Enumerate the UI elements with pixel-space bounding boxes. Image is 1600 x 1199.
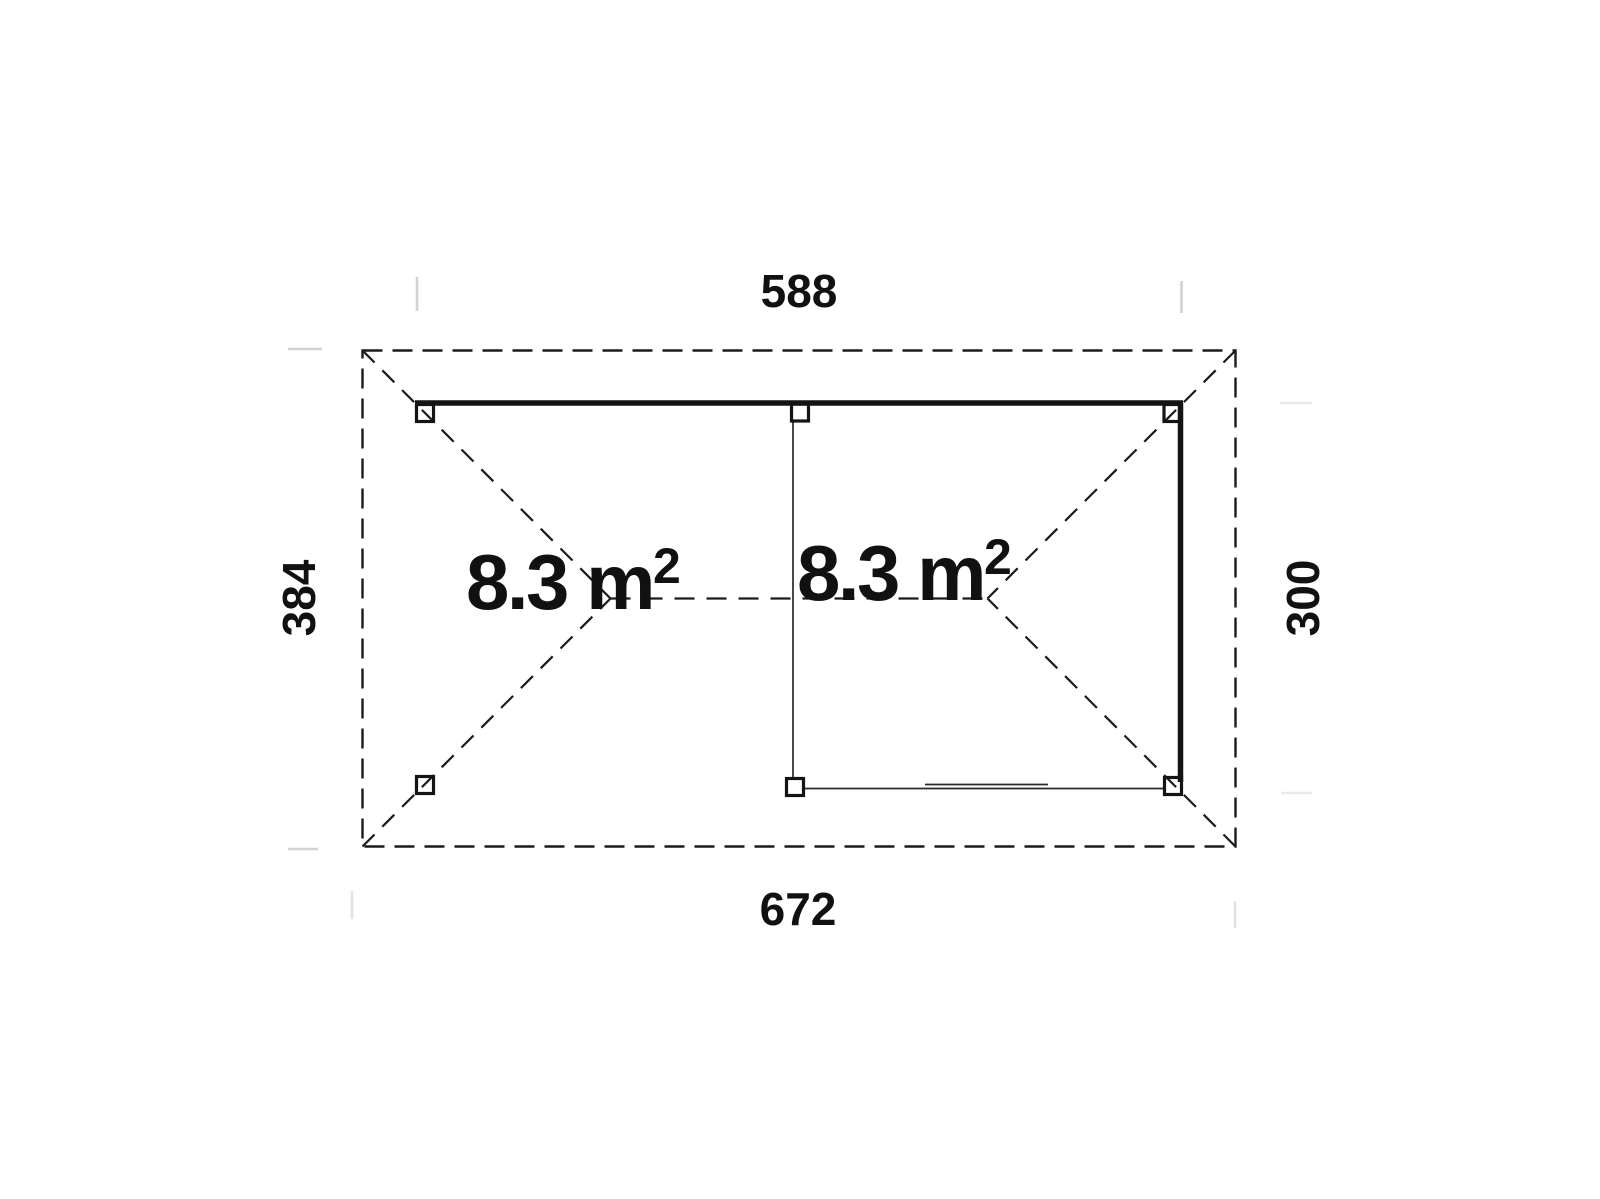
plan-drawing: 588 672 384 300 8.3 m2 8.3 m2: [0, 0, 1600, 1199]
dimension-label-left: 384: [273, 559, 325, 636]
area-label-left-superscript: 2: [653, 538, 679, 594]
area-label-left-value: 8.3 m: [466, 538, 653, 626]
area-label-right-value: 8.3 m: [797, 529, 984, 617]
dimension-label-bottom: 672: [760, 883, 837, 935]
dimension-label-top: 588: [761, 265, 838, 317]
post-bottom-middle: [787, 779, 804, 796]
post-top-middle: [792, 404, 809, 421]
area-label-right: 8.3 m2: [797, 529, 1010, 617]
dimension-label-right: 300: [1277, 560, 1329, 637]
area-label-right-superscript: 2: [984, 529, 1010, 585]
hip-diagonal-top-right: [988, 351, 1236, 599]
floor-plan: 588 672 384 300 8.3 m2 8.3 m2: [0, 0, 1600, 1199]
hip-diagonal-bottom-left: [363, 599, 611, 847]
hip-diagonal-bottom-right: [988, 599, 1236, 847]
area-label-left: 8.3 m2: [466, 538, 679, 626]
